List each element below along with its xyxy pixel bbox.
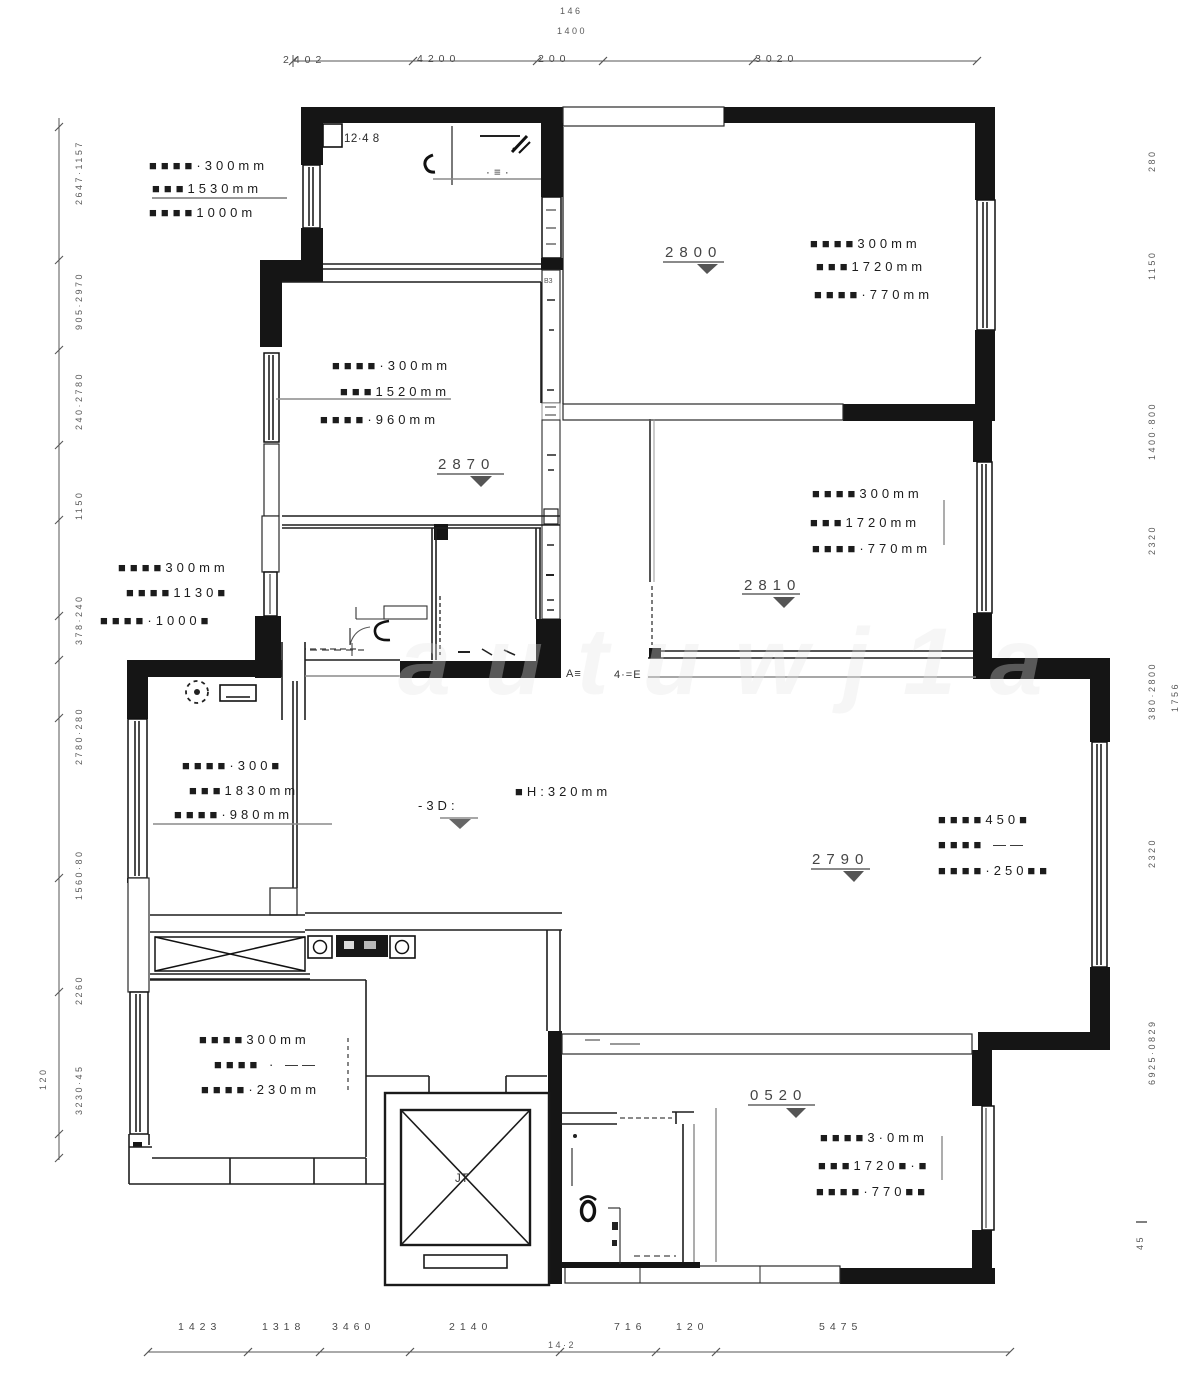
svg-text:■H:320mm: ■H:320mm [515,784,611,799]
svg-text:■■■■300mm: ■■■■300mm [199,1032,310,1047]
svg-text:1423: 1423 [178,1321,221,1333]
svg-text:0520: 0520 [750,1087,807,1104]
svg-text:2402: 2402 [283,54,326,66]
svg-text:3460: 3460 [332,1321,375,1333]
svg-text:45: 45 [1135,1235,1145,1250]
svg-text:-3D:: -3D: [418,798,459,813]
svg-text:2790: 2790 [812,851,869,868]
svg-text:1150: 1150 [74,491,84,520]
svg-text:2647·1157: 2647·1157 [74,140,84,205]
svg-text:1150: 1150 [1147,251,1157,280]
svg-text:■■■■·1000■: ■■■■·1000■ [100,613,213,628]
svg-text:2140: 2140 [449,1321,492,1333]
svg-text:120: 120 [38,1067,48,1090]
svg-text:5475: 5475 [819,1321,862,1333]
svg-text:146: 146 [560,6,583,16]
svg-text:■■■■·300■: ■■■■·300■ [182,758,283,773]
svg-text:■■■■·230mm: ■■■■·230mm [201,1082,320,1097]
svg-text:2780·280: 2780·280 [74,707,84,765]
svg-text:1400: 1400 [557,26,587,36]
svg-text:■■■■·770■■: ■■■■·770■■ [816,1184,929,1199]
svg-text:240·2780: 240·2780 [74,372,84,430]
svg-text:200: 200 [538,53,571,65]
svg-text:1560·80: 1560·80 [74,849,84,900]
svg-text:2810: 2810 [744,577,801,594]
svg-text:■■■■300mm: ■■■■300mm [810,236,921,251]
svg-text:4200: 4200 [417,53,460,65]
svg-text:JT: JT [455,1173,469,1185]
svg-text:3230·45: 3230·45 [74,1064,84,1115]
svg-text:1756: 1756 [1170,682,1180,712]
svg-text:■■■■·300mm: ■■■■·300mm [332,358,451,373]
svg-text:■■■■3·0mm: ■■■■3·0mm [820,1130,928,1145]
svg-text:1318: 1318 [262,1321,305,1333]
svg-text:905·2970: 905·2970 [74,272,84,330]
svg-text:· ≡ ·: · ≡ · [486,167,509,179]
svg-text:2870: 2870 [438,456,495,473]
svg-text:280: 280 [1147,149,1157,172]
svg-text:■■■■1130■: ■■■■1130■ [126,585,229,600]
svg-text:■■■1720mm: ■■■1720mm [810,515,920,530]
svg-text:■■■■·960mm: ■■■■·960mm [320,412,439,427]
svg-text:■■■■·770mm: ■■■■·770mm [814,287,933,302]
svg-text:6925·0829: 6925·0829 [1147,1019,1157,1085]
svg-text:■■■1720mm: ■■■1720mm [816,259,926,274]
svg-text:■■■1720■·■: ■■■1720■·■ [818,1158,931,1173]
svg-text:■■■■300mm: ■■■■300mm [118,560,229,575]
svg-text:■■■■450■: ■■■■450■ [938,812,1031,827]
svg-text:■■■■ ——: ■■■■ —— [938,837,1027,852]
svg-text:1400·800: 1400·800 [1147,402,1157,460]
svg-text:■■■1520mm: ■■■1520mm [340,384,450,399]
svg-text:■■■■1000m: ■■■■1000m [149,205,256,220]
svg-text:378·240: 378·240 [74,594,84,645]
svg-text:■■■■·770mm: ■■■■·770mm [812,541,931,556]
svg-text:■■■■·980mm: ■■■■·980mm [174,807,293,822]
svg-text:2320: 2320 [1147,525,1157,555]
svg-text:■■■■ · ——: ■■■■ · —— [214,1057,319,1072]
svg-text:■■■1530mm: ■■■1530mm [152,181,262,196]
svg-text:■■■■·300mm: ■■■■·300mm [149,158,268,173]
svg-text:2320: 2320 [1147,838,1157,868]
svg-text:■■■■·250■■: ■■■■·250■■ [938,863,1051,878]
svg-text:B3: B3 [544,278,553,285]
svg-text:380·2800: 380·2800 [1147,662,1157,720]
svg-text:■■■■300mm: ■■■■300mm [812,486,923,501]
svg-text:2260: 2260 [74,975,84,1005]
svg-text:2800: 2800 [665,244,722,261]
svg-text:■■■1830mm: ■■■1830mm [189,783,299,798]
svg-text:3020: 3020 [755,53,798,65]
svg-text:120: 120 [676,1321,709,1333]
svg-text:12·4 8: 12·4 8 [344,133,380,145]
svg-text:autuwj1a: autuwj1a [398,609,1077,715]
svg-text:14·2: 14·2 [548,1340,576,1350]
svg-text:716: 716 [614,1321,647,1333]
